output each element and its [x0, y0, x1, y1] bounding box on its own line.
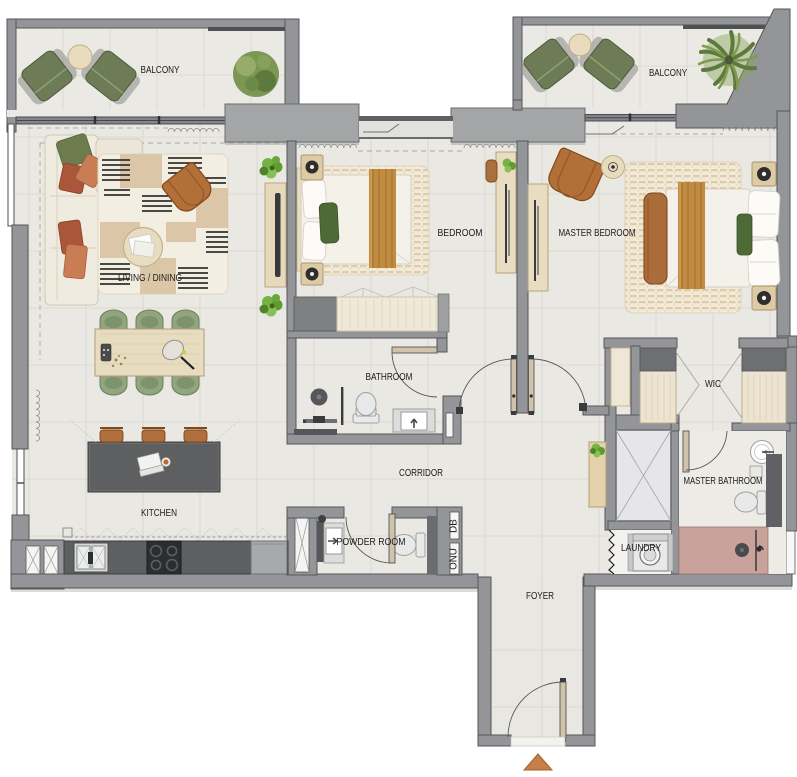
svg-text:CORRIDOR: CORRIDOR: [399, 468, 443, 479]
svg-text:BEDROOM: BEDROOM: [438, 228, 483, 239]
svg-text:DB: DB: [449, 519, 460, 533]
svg-text:FOYER: FOYER: [526, 591, 554, 602]
svg-text:BALCONY: BALCONY: [649, 68, 687, 79]
svg-text:ONU: ONU: [449, 548, 460, 570]
svg-text:BATHROOM: BATHROOM: [366, 372, 413, 383]
svg-text:WIC: WIC: [705, 379, 721, 390]
svg-text:LIVING / DINING: LIVING / DINING: [118, 273, 182, 284]
svg-text:POWDER ROOM: POWDER ROOM: [337, 537, 406, 548]
svg-text:KITCHEN: KITCHEN: [141, 508, 177, 519]
svg-text:BALCONY: BALCONY: [141, 65, 180, 76]
svg-text:MASTER BEDROOM: MASTER BEDROOM: [559, 228, 636, 239]
svg-text:LAUNDRY: LAUNDRY: [621, 543, 661, 554]
svg-text:MASTER BATHROOM: MASTER BATHROOM: [684, 476, 763, 487]
